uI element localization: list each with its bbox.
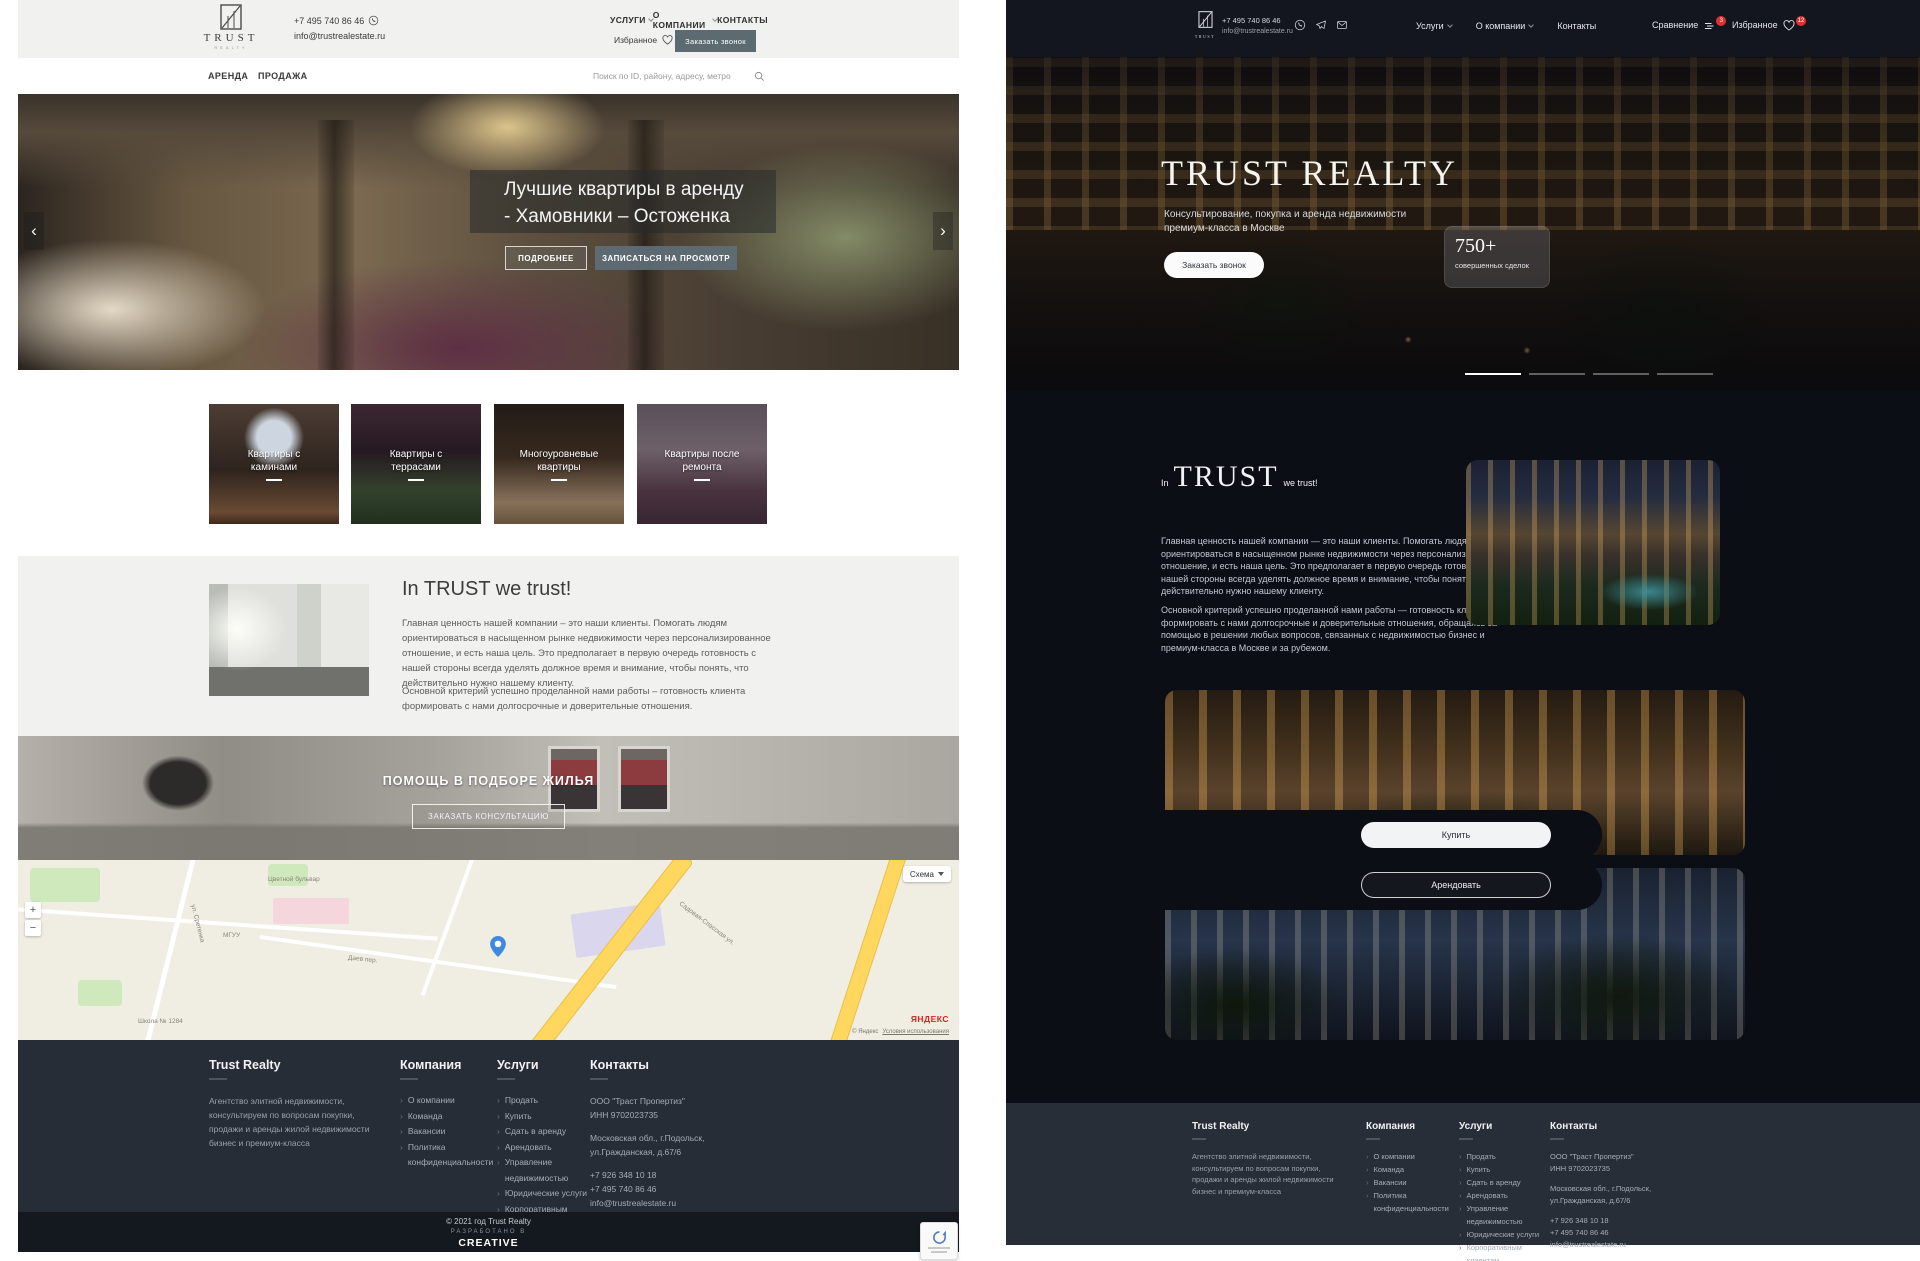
footer-link-label: Сдать в аренду: [505, 1124, 566, 1140]
dark-header: TRUST +7 495 740 86 46 info@trustrealest…: [1006, 0, 1920, 57]
footer-link[interactable]: ›Сдать в аренду: [1459, 1176, 1549, 1189]
buy-button[interactable]: Купить: [1361, 822, 1551, 848]
compare-icon: [1703, 20, 1715, 32]
category-label: Квартиры с каминами: [224, 448, 324, 481]
chevron-right-icon: ›: [1459, 1228, 1462, 1241]
chevron-right-icon: ›: [400, 1093, 403, 1109]
about-title-pre: In: [1161, 478, 1169, 488]
studio-logo[interactable]: CREATIVE: [18, 1237, 959, 1249]
footer-link-label: Управление недвижимостью: [1467, 1202, 1550, 1228]
map-poi-label: Школа № 1284: [138, 1018, 183, 1025]
chevron-right-icon: ›: [497, 1093, 500, 1109]
developed-by-text: РАЗРАБОТАНО В: [18, 1229, 959, 1235]
about-title: In TRUST we trust!: [402, 578, 571, 601]
map-scheme-selector[interactable]: Схема: [903, 866, 951, 882]
footer-link-label: Юридические услуги: [505, 1186, 587, 1202]
footer-link-label: Юридические услуги: [1467, 1228, 1540, 1241]
logo-title: TRUST: [1194, 34, 1216, 39]
logo-title: TRUST: [192, 32, 270, 44]
chevron-right-icon: ›: [1459, 1189, 1462, 1202]
footer-contact-line: ул.Гражданская, д.67/6: [1550, 1195, 1680, 1207]
footer-link[interactable]: ›Политика конфиденциальности: [1366, 1189, 1458, 1215]
slider-segment-active[interactable]: [1465, 373, 1521, 375]
chevron-down-icon: [1447, 22, 1453, 28]
tab-rent[interactable]: АРЕНДА: [208, 71, 248, 81]
footer-link[interactable]: ›Управление недвижимостью: [1459, 1202, 1549, 1228]
yandex-logo[interactable]: ЯНДЕКС: [911, 1014, 949, 1024]
footer-link-label: Корпоративным клиентам: [1467, 1241, 1550, 1261]
nav-company-label: О КОМПАНИИ: [653, 10, 711, 30]
deals-count: 750+: [1455, 235, 1539, 258]
footer-contact-line: ООО "Траст Пропертиз": [590, 1094, 740, 1108]
category-label: Квартиры после ремонта: [652, 448, 752, 481]
about-paragraph: Основной критерий успешно проделанной на…: [402, 684, 774, 714]
chevron-right-icon: ›: [497, 1186, 500, 1202]
search-placeholder: Поиск по ID, району, адресу, метро: [593, 71, 731, 81]
hero-more-button[interactable]: ПОДРОБНЕЕ: [505, 246, 587, 270]
chevron-right-icon: ›: [1366, 1150, 1369, 1163]
map-scheme-label: Схема: [910, 870, 934, 879]
header-email[interactable]: info@trustrealestate.ru: [1222, 28, 1293, 35]
map-terms-link[interactable]: Условия использования: [882, 1029, 949, 1035]
recaptcha-icon: [932, 1230, 947, 1245]
footer-link[interactable]: ›Арендовать: [497, 1140, 605, 1156]
recaptcha-badge[interactable]: [920, 1222, 958, 1260]
footer-contact-line: +7 495 740 86 46: [1550, 1227, 1680, 1239]
about-interior-photo: [209, 584, 369, 696]
map-copyright: © Яндекс: [852, 1029, 878, 1035]
help-title: ПОМОЩЬ В ПОДБОРЕ ЖИЛЬЯ: [18, 774, 959, 788]
map-poi-label: МГУУ: [223, 932, 240, 939]
deals-counter-card: 750+ совершенных сделок: [1444, 226, 1550, 288]
dark-footer: Trust Realty Агентство элитной недвижимо…: [1006, 1103, 1920, 1245]
footer-link[interactable]: ›Юридические услуги: [497, 1186, 605, 1202]
footer-link[interactable]: ›Купить: [497, 1109, 605, 1125]
recaptcha-text-line: [931, 1251, 947, 1253]
footer-company-title: Компания: [1366, 1121, 1458, 1140]
footer-link[interactable]: ›Корпоративным клиентам: [1459, 1241, 1549, 1261]
footer-link[interactable]: ›Продать: [1459, 1150, 1549, 1163]
footer-link[interactable]: ›Арендовать: [1459, 1189, 1549, 1202]
building-logo-icon: [220, 4, 242, 30]
about-title-word: TRUST: [1174, 460, 1279, 493]
favorites-label: Избранное: [614, 35, 657, 45]
search-icon[interactable]: [754, 71, 765, 82]
dark-hero-title: TRUST REALTY: [1161, 152, 1458, 194]
nav-contacts[interactable]: КОНТАКТЫ: [717, 10, 768, 30]
map-road: [259, 935, 616, 989]
tab-sale[interactable]: ПРОДАЖА: [258, 71, 308, 81]
compare-link[interactable]: Сравнение 3: [1652, 20, 1726, 32]
nav-services-label: УСЛУГИ: [610, 15, 646, 25]
heart-icon: [662, 35, 673, 45]
footer-contact-line: Московская обл., г.Подольск,: [1550, 1183, 1680, 1195]
zoom-out-button[interactable]: −: [25, 920, 41, 936]
footer-contacts-title: Контакты: [590, 1058, 740, 1080]
footer-link-label: Продать: [1467, 1150, 1496, 1163]
slider-next-arrow[interactable]: ›: [933, 212, 953, 250]
hero-slider: Лучшие квартиры в аренду - Хамовники – О…: [18, 94, 959, 370]
map-main-road: [520, 860, 693, 1040]
category-card-renovated[interactable]: Квартиры после ремонта: [637, 404, 767, 524]
footer-contact-line: info@trustrealestate.ru: [1550, 1239, 1680, 1251]
order-call-button[interactable]: Заказать звонок: [675, 30, 756, 52]
recaptcha-text-line: [928, 1247, 950, 1249]
footer-contact-lines: ООО "Траст Пропертиз"ИНН 9702023735Моско…: [590, 1094, 740, 1210]
footer-link[interactable]: ›Сдать в аренду: [497, 1124, 605, 1140]
map-park-area: [30, 868, 100, 902]
light-site-panel: TRUST REALTY +7 495 740 86 46 info@trust…: [18, 0, 959, 1261]
about-paragraph: Главная ценность нашей компании – это на…: [402, 616, 774, 691]
dark-main-nav: Услуги О компании Контакты: [1416, 21, 1596, 31]
category-label: Многоуровневые квартиры: [509, 448, 609, 481]
header-phone[interactable]: +7 495 740 86 46: [1222, 16, 1281, 25]
heart-icon: [1783, 20, 1795, 31]
nav-services[interactable]: Услуги: [1416, 21, 1452, 31]
footer-link-label: Купить: [1467, 1163, 1491, 1176]
footer-link-label: О компании: [1374, 1150, 1415, 1163]
category-label: Квартиры с террасами: [366, 448, 466, 481]
footer-link[interactable]: ›Купить: [1459, 1163, 1549, 1176]
footer-link[interactable]: ›Продать: [497, 1093, 605, 1109]
nav-contacts-label: Контакты: [1557, 21, 1596, 31]
footer-contact-line: +7 495 740 86 46: [590, 1182, 740, 1196]
footer-link-label: О компании: [408, 1093, 455, 1109]
footer-contact-line: +7 926 348 10 18: [590, 1168, 740, 1182]
chevron-right-icon: ›: [400, 1109, 403, 1125]
light-main-nav: УСЛУГИ О КОМПАНИИ КОНТАКТЫ: [610, 10, 768, 30]
slider-prev-arrow[interactable]: ‹: [24, 212, 44, 250]
footer-contact-lines: ООО "Траст Пропертиз"ИНН 9702023735Моско…: [1550, 1151, 1680, 1251]
about-title-post: we trust!: [1284, 478, 1318, 488]
order-consultation-button[interactable]: ЗАКАЗАТЬ КОНСУЛЬТАЦИЮ: [412, 804, 565, 829]
search-input[interactable]: Поиск по ID, району, адресу, метро: [593, 66, 765, 86]
hero-title: Лучшие квартиры в аренду - Хамовники – О…: [504, 176, 754, 230]
curtain-decor: [318, 120, 354, 370]
dark-about-title: InTRUSTwe trust!: [1161, 460, 1318, 494]
map-block: [273, 898, 349, 924]
curtain-decor: [628, 120, 664, 370]
map-park-area: [78, 980, 122, 1006]
compare-badge: 3: [1716, 16, 1726, 26]
footer-services-title: Услуги: [497, 1058, 605, 1080]
chevron-right-icon: ›: [497, 1140, 500, 1156]
slider-segment[interactable]: [1593, 373, 1649, 375]
map-main-road: [821, 860, 908, 1040]
chevron-right-icon: ›: [1459, 1163, 1462, 1176]
compare-label: Сравнение: [1652, 20, 1698, 30]
footer-link[interactable]: ›Команда: [1366, 1163, 1458, 1176]
header-email[interactable]: info@trustrealestate.ru: [294, 31, 385, 41]
footer-link-label: Команда: [408, 1109, 443, 1125]
dark-hero: TRUST REALTY Консультирование, покупка и…: [1006, 0, 1920, 390]
footer-link-label: Вакансии: [1374, 1176, 1407, 1189]
chevron-right-icon: ›: [1366, 1163, 1369, 1176]
chevron-right-icon: ›: [400, 1140, 403, 1171]
footer-description: Агентство элитной недвижимости, консульт…: [1192, 1151, 1344, 1197]
chevron-right-icon: ›: [497, 1109, 500, 1125]
favorites-label: Избранное: [1732, 20, 1778, 30]
chevron-right-icon: ›: [497, 1124, 500, 1140]
trust-logo[interactable]: TRUST: [1194, 11, 1216, 39]
light-header: TRUST REALTY +7 495 740 86 46 info@trust…: [18, 0, 959, 58]
chevron-right-icon: ›: [1459, 1176, 1462, 1189]
footer-services-links: ›Продать›Купить›Сдать в аренду›Арендоват…: [1459, 1150, 1549, 1261]
dropdown-triangle-icon: [938, 872, 944, 876]
favorites-link[interactable]: Избранное: [614, 35, 673, 45]
chevron-right-icon: ›: [1459, 1241, 1462, 1261]
favorites-link[interactable]: Избранное 12: [1732, 20, 1806, 31]
chevron-right-icon: ›: [1459, 1202, 1462, 1228]
footer-contact-line: ИНН 9702023735: [1550, 1163, 1680, 1175]
copyright-text: © 2021 год Trust Realty: [18, 1212, 959, 1226]
category-card-terraces[interactable]: Квартиры с террасами: [351, 404, 481, 524]
nav-contacts[interactable]: Контакты: [1557, 21, 1596, 31]
footer-link-label: Политика конфиденциальности: [1374, 1189, 1459, 1215]
footer-contact-line: info@trustrealestate.ru: [590, 1196, 740, 1210]
map-road: [421, 860, 479, 996]
header-phone[interactable]: +7 495 740 86 46: [294, 15, 379, 26]
email-icon[interactable]: [1336, 19, 1348, 31]
hero-gradient-overlay: [1006, 0, 1920, 390]
light-subnav: АРЕНДА ПРОДАЖА Поиск по ID, району, адре…: [18, 58, 959, 94]
footer-contact-line: Московская обл., г.Подольск,: [590, 1131, 740, 1145]
map-street-label: Цветной бульвар: [268, 876, 320, 883]
nav-services[interactable]: УСЛУГИ: [610, 10, 653, 30]
map-street-label: Даев пер.: [348, 954, 378, 964]
telegram-icon[interactable]: [1315, 19, 1327, 31]
map-road: [144, 860, 197, 1040]
nav-services-label: Услуги: [1416, 21, 1444, 31]
favorites-badge: 12: [1796, 16, 1807, 26]
nav-contacts-label: КОНТАКТЫ: [717, 15, 768, 25]
category-card-multilevel[interactable]: Многоуровневые квартиры: [494, 404, 624, 524]
footer-link-label: Сдать в аренду: [1467, 1176, 1521, 1189]
footer-link[interactable]: ›Юридические услуги: [1459, 1228, 1549, 1241]
chevron-right-icon: ›: [400, 1124, 403, 1140]
nav-company[interactable]: О КОМПАНИИ: [653, 10, 717, 30]
footer-link-label: Вакансии: [408, 1124, 445, 1140]
footer-description: Агентство элитной недвижимости, консульт…: [209, 1094, 389, 1150]
slider-segment[interactable]: [1657, 373, 1713, 375]
chevron-right-icon: ›: [1366, 1176, 1369, 1189]
slider-indicator: [1465, 373, 1713, 375]
chevron-down-icon: [1528, 22, 1534, 28]
social-icons: [1294, 19, 1348, 31]
help-banner: ПОМОЩЬ В ПОДБОРЕ ЖИЛЬЯ ЗАКАЗАТЬ КОНСУЛЬТ…: [18, 736, 959, 860]
order-call-button[interactable]: Заказать звонок: [1164, 252, 1264, 278]
chevron-right-icon: ›: [1366, 1189, 1369, 1215]
footer-services-title: Услуги: [1459, 1121, 1549, 1140]
chevron-right-icon: ›: [497, 1155, 500, 1186]
map-attribution[interactable]: © ЯндексУсловия использования: [852, 1029, 949, 1035]
footer-link[interactable]: ›Вакансии: [1366, 1176, 1458, 1189]
category-card-fireplaces[interactable]: Квартиры с каминами: [209, 404, 339, 524]
dark-site-panel: TRUST REALTY Консультирование, покупка и…: [1006, 0, 1920, 1245]
chevron-right-icon: ›: [1459, 1150, 1462, 1163]
footer-link-label: Продать: [505, 1093, 538, 1109]
about-section: In TRUST we trust! Главная ценность наше…: [18, 556, 959, 736]
footer-link-label: Команда: [1374, 1163, 1405, 1176]
dark-hero-subtitle: Консультирование, покупка и аренда недви…: [1164, 208, 1444, 236]
footer-contact-line: ул.Гражданская, д.67/6: [590, 1145, 740, 1159]
footer-brand: Trust Realty: [1192, 1121, 1344, 1140]
building-logo-icon: [1198, 11, 1213, 28]
footer-contact-line: +7 926 348 10 18: [1550, 1215, 1680, 1227]
footer-link[interactable]: ›О компании: [1366, 1150, 1458, 1163]
about-night-complex-photo: [1466, 460, 1720, 625]
map-street-label: Садовая-Спасская ул.: [678, 900, 736, 946]
nav-company[interactable]: О компании: [1476, 21, 1534, 31]
hero-book-viewing-button[interactable]: ЗАПИСАТЬСЯ НА ПРОСМОТР: [595, 246, 737, 270]
footer-contacts-title: Контакты: [1550, 1121, 1680, 1140]
whatsapp-icon[interactable]: [368, 15, 379, 26]
footer-link-label: Купить: [505, 1109, 532, 1125]
trust-logo[interactable]: TRUST REALTY: [192, 4, 270, 50]
footer-contact-line: ИНН 9702023735: [590, 1108, 740, 1122]
footer-link[interactable]: ›Управление недвижимостью: [497, 1155, 605, 1186]
whatsapp-icon[interactable]: [1294, 19, 1306, 31]
yandex-map[interactable]: Садовая-Спасская ул. ул. Сретенка Цветно…: [18, 860, 959, 1040]
footer-brand: Trust Realty: [209, 1058, 389, 1080]
footer-link-label: Арендовать: [1467, 1189, 1508, 1202]
footer-link-label: Арендовать: [505, 1140, 552, 1156]
map-location-pin: [490, 936, 506, 962]
screenshot-stage: TRUST REALTY +7 495 740 86 46 info@trust…: [0, 0, 1920, 1261]
zoom-in-button[interactable]: +: [25, 902, 41, 918]
logo-subtitle: REALTY: [192, 45, 270, 50]
slider-segment[interactable]: [1529, 373, 1585, 375]
deals-label: совершенных сделок: [1455, 261, 1539, 270]
phone-number: +7 495 740 86 46: [294, 16, 364, 26]
footer-bottom-bar: © 2021 год Trust Realty РАЗРАБОТАНО В CR…: [18, 1212, 959, 1252]
rent-button[interactable]: Арендовать: [1361, 872, 1551, 898]
footer-company-links: ›О компании›Команда›Вакансии›Политика ко…: [1366, 1150, 1458, 1215]
footer-contact-line: ООО "Траст Пропертиз": [1550, 1151, 1680, 1163]
nav-company-label: О компании: [1476, 21, 1526, 31]
light-footer: Trust Realty Агентство элитной недвижимо…: [18, 1040, 959, 1212]
map-zoom-controls: + −: [25, 902, 41, 936]
